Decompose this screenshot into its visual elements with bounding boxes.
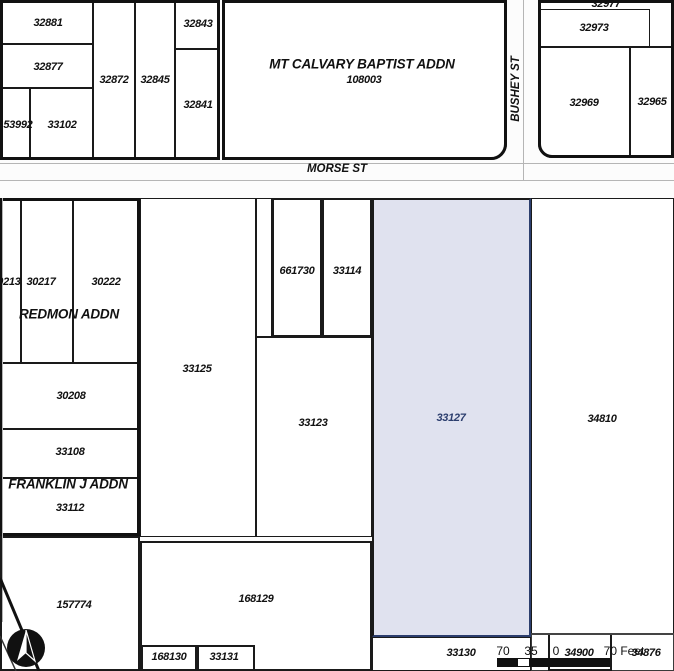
parcel-33114[interactable] (322, 198, 372, 337)
parcel-32872[interactable] (93, 0, 135, 160)
parcel-32969[interactable] (538, 47, 630, 158)
parcel-32843[interactable] (175, 0, 220, 49)
parcel-33112[interactable] (0, 478, 140, 536)
parcel-661730[interactable] (272, 198, 322, 337)
parcel-33123[interactable] (256, 337, 372, 537)
street-name-label: BUSHEY ST (510, 56, 522, 122)
parcel-30222[interactable] (73, 198, 140, 363)
street-centerline (523, 0, 524, 180)
parcel-108003[interactable] (222, 0, 507, 160)
parcel-32973[interactable] (538, 9, 650, 47)
parcel-153992[interactable] (0, 88, 30, 160)
parcel-33125[interactable] (140, 198, 256, 537)
parcel-33108[interactable] (0, 429, 140, 478)
parcel-157774[interactable] (0, 536, 140, 671)
parcel-32841[interactable] (175, 49, 220, 160)
parcel-33131[interactable] (197, 645, 255, 671)
parcel-33102[interactable] (30, 88, 93, 160)
parcel-168130[interactable] (141, 645, 197, 671)
scale-bar-segment (530, 658, 610, 667)
street-centerline (0, 163, 674, 164)
street-name-label: MORSE ST (307, 163, 367, 175)
scale-bar-segment (497, 658, 517, 667)
parcel-33127[interactable] (372, 198, 531, 637)
parcel-unlabeled[interactable] (256, 198, 272, 337)
scale-bar-segment (517, 658, 530, 667)
parcel-30208[interactable] (0, 363, 140, 429)
map-canvas: 3288132877153992331023287232845328433284… (0, 0, 674, 671)
street-centerline (0, 180, 674, 181)
parcel-32881[interactable] (0, 0, 93, 44)
parcel-34810[interactable] (531, 198, 674, 634)
parcel-30217[interactable] (21, 198, 73, 363)
parcel-32965[interactable] (630, 47, 674, 158)
parcel-boundary-line (531, 633, 674, 635)
parcel-32877[interactable] (0, 44, 93, 88)
parcel-32845[interactable] (135, 0, 175, 160)
parcel-30213[interactable] (0, 198, 21, 363)
street-centerline (2, 198, 3, 622)
